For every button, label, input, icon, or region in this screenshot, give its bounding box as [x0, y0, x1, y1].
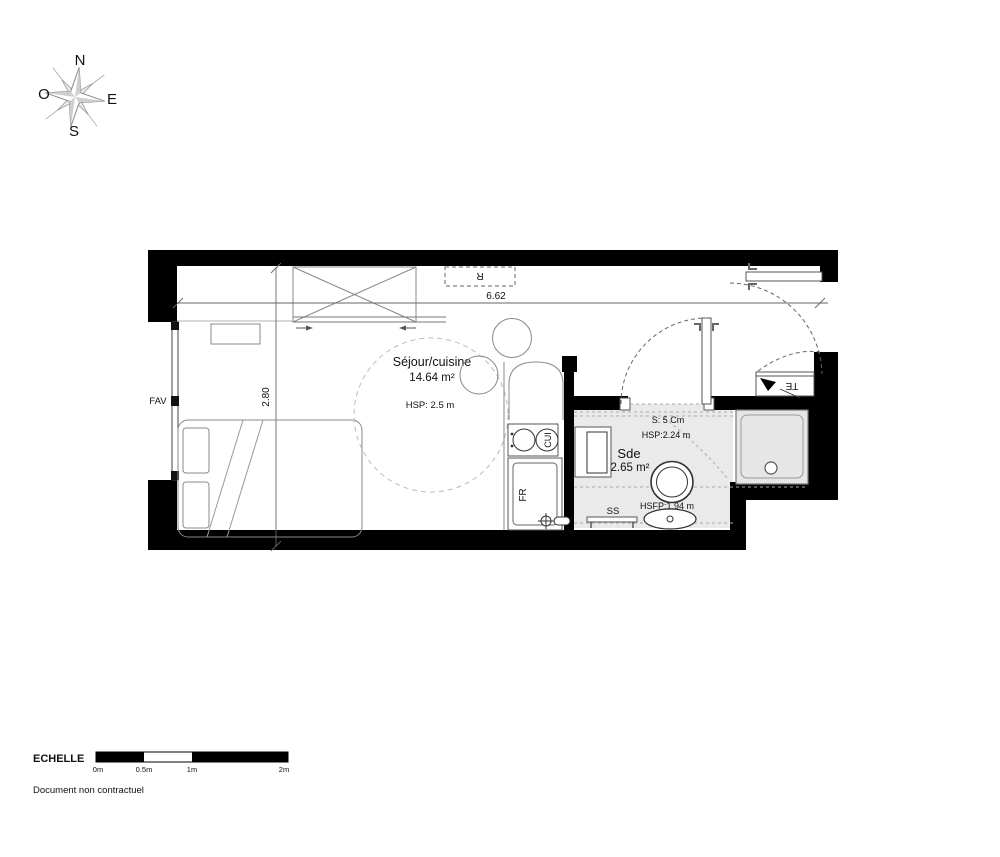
- bed: [178, 420, 362, 537]
- dimension-depth-value: 2.80: [261, 387, 272, 407]
- sink-fridge-unit: FR: [508, 458, 570, 530]
- technical-label: TE: [785, 380, 798, 391]
- fridge-label: FR: [518, 488, 529, 501]
- door-swing-arc-secondary: [758, 351, 820, 371]
- slide-arrow-head: [399, 326, 406, 331]
- window-label: FAV: [149, 396, 167, 407]
- dimension-width-value: 6.62: [486, 291, 506, 302]
- scale-tick-0: 0m: [93, 765, 103, 774]
- dimension-depth: 2.80: [261, 263, 281, 551]
- wall-below-shower: [730, 482, 838, 500]
- tap-handle: [554, 517, 570, 525]
- bathroom-ceiling-height: HSP:2.24 m: [642, 430, 691, 440]
- headboard-shelf: [211, 324, 260, 344]
- scale-bar: ECHELLE 0m 0.5m 1m 2m: [33, 752, 289, 774]
- wall-kitchen-bath-divider: [564, 356, 574, 530]
- scale-title: ECHELLE: [33, 753, 84, 765]
- window-fav: FAV: [149, 322, 179, 480]
- window-mullion: [171, 322, 179, 330]
- compass-north-label: N: [75, 52, 86, 69]
- stool: [460, 356, 498, 394]
- compass-west-label: O: [38, 86, 50, 103]
- knob: [511, 445, 514, 448]
- entry-door: [730, 263, 822, 374]
- pillow: [183, 482, 209, 528]
- wall-right-mid: [814, 352, 838, 396]
- bathroom-door: [620, 318, 719, 410]
- scale-tick-2: 2m: [279, 765, 289, 774]
- scale-tick-05: 0.5m: [136, 765, 153, 774]
- cooktop-label: CUI: [543, 432, 553, 448]
- bathroom-name: Sde: [617, 446, 640, 461]
- floor-plan-drawing: N E S O FAV: [0, 0, 1000, 857]
- cooktop: CUI: [508, 424, 558, 456]
- toilet-bowl: [651, 462, 693, 503]
- bathroom-area: 2.65 m²: [611, 462, 650, 474]
- living-room-ceiling-height: HSP: 2.5 m: [406, 400, 455, 411]
- towel-rail-label: SS: [607, 506, 620, 517]
- scale-tick-1: 1m: [187, 765, 197, 774]
- radiator-label: R: [476, 270, 483, 281]
- wall-top: [148, 250, 838, 266]
- shower: [736, 410, 808, 484]
- wall-bath-right-column: [730, 482, 746, 550]
- dimension-width: 6.62: [173, 291, 828, 308]
- scale-segment-black: [96, 752, 144, 762]
- bath-cabinet: [575, 427, 611, 477]
- wardrobe-closet: [293, 267, 446, 331]
- scale-segment-black: [192, 752, 288, 762]
- door-handle: [694, 324, 700, 331]
- door-swing-arc: [730, 283, 822, 374]
- bed-outline: [178, 420, 362, 537]
- wall-entry-jamb: [820, 250, 838, 282]
- radiator-box: R: [445, 267, 515, 286]
- blanket-fold-line: [227, 420, 263, 537]
- wall-bottom: [148, 530, 746, 550]
- wall-left-upper: [148, 250, 177, 322]
- shower-drain: [765, 462, 777, 474]
- door-handle: [749, 284, 757, 290]
- slide-arrow-head: [306, 326, 313, 331]
- towel-rail-bar: [587, 517, 637, 522]
- toilet: [651, 462, 693, 503]
- living-room-name: Séjour/cuisine: [393, 355, 472, 369]
- washbasin: [644, 509, 696, 529]
- window-mullion: [171, 396, 179, 406]
- pillow: [183, 428, 209, 473]
- technical-box: TE: [756, 372, 814, 398]
- door-leaf: [746, 272, 822, 281]
- compass-south-label: S: [69, 123, 79, 140]
- door-swing-arc: [621, 318, 707, 404]
- door-handle: [713, 324, 719, 331]
- bathroom-step-label: S: 5 Cm: [652, 415, 685, 425]
- compass-east-label: E: [107, 91, 117, 108]
- living-room-area: 14.64 m²: [409, 372, 455, 384]
- living-room-labels: Séjour/cuisine 14.64 m² HSP: 2.5 m: [354, 338, 508, 492]
- compass-rose: N E S O: [38, 52, 117, 140]
- stool: [493, 319, 532, 358]
- disclaimer-text: Document non contractuel: [33, 785, 144, 796]
- compass-main-star: [41, 63, 109, 131]
- cabinet-outline: [575, 427, 611, 477]
- kitchen-chair: [509, 362, 563, 420]
- blanket-fold-line: [207, 420, 243, 537]
- floor-plan-page: N E S O FAV: [0, 0, 1000, 857]
- knob: [511, 433, 514, 436]
- basin-outline: [644, 509, 696, 529]
- door-leaf: [702, 318, 711, 404]
- kitchen-unit: CUI FR: [504, 362, 570, 530]
